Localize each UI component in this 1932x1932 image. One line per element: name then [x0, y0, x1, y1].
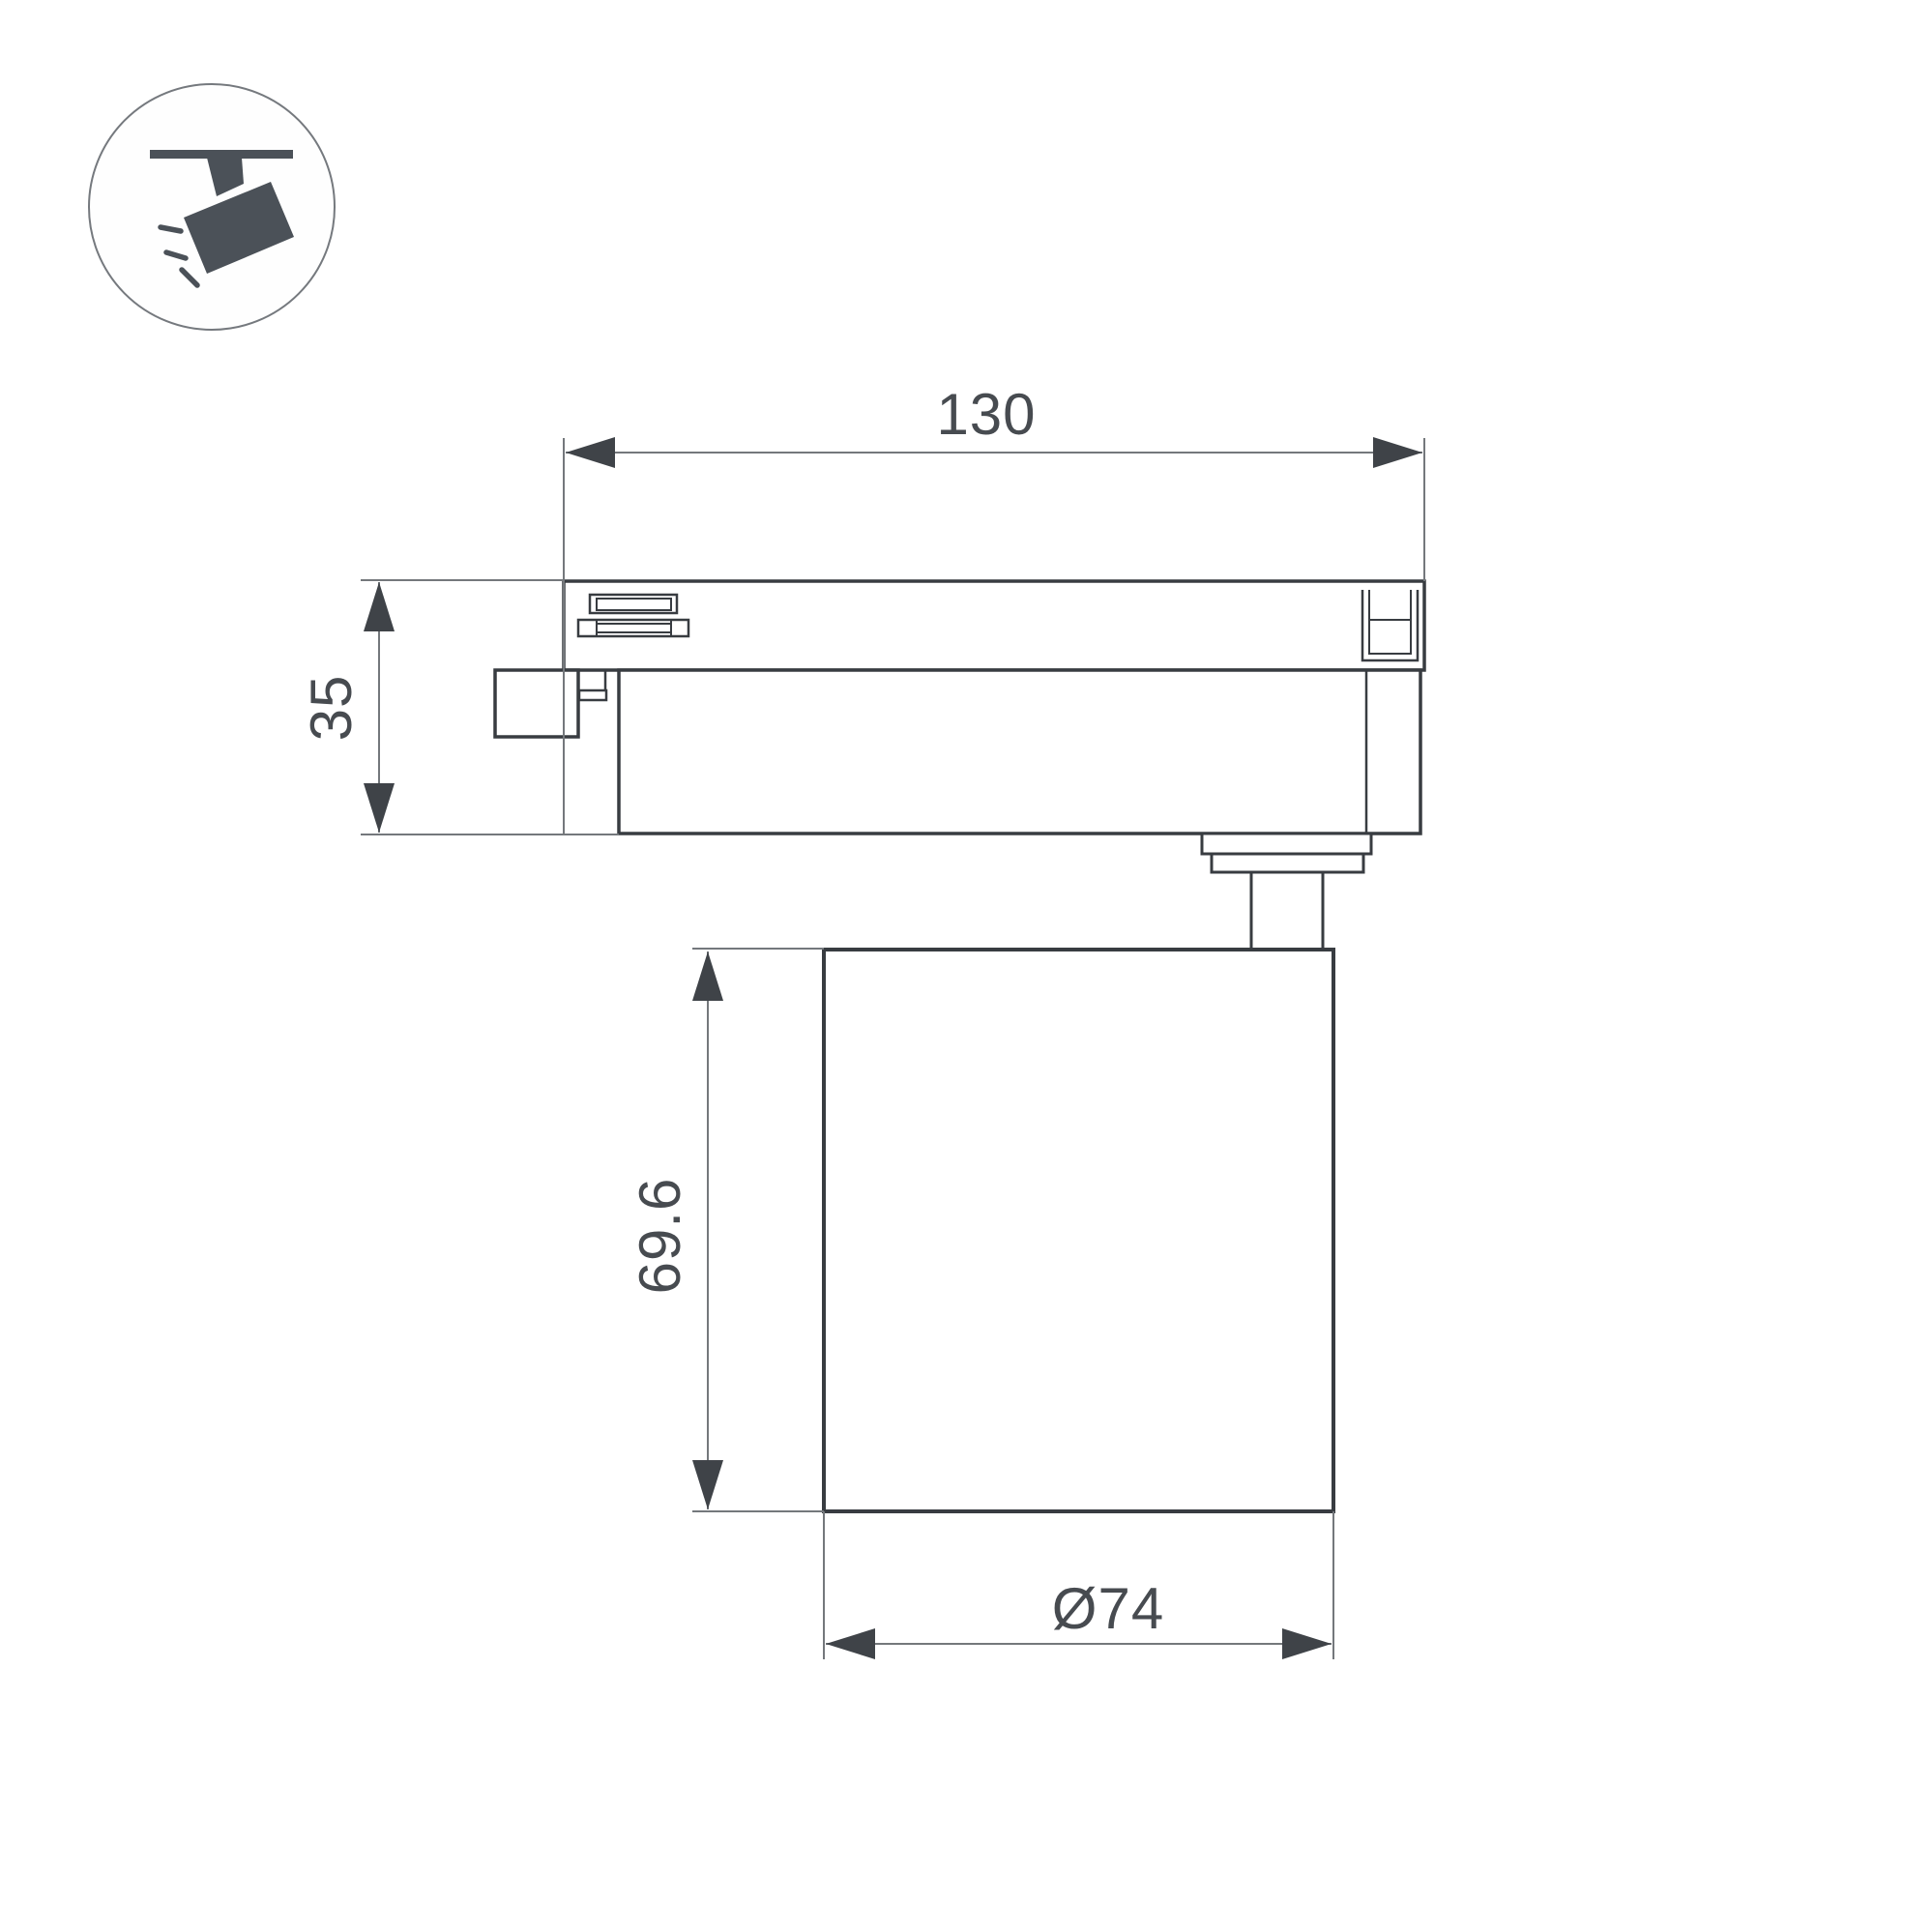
dimension-label-69-6: 69.6: [628, 1178, 692, 1295]
dimension-label-35: 35: [299, 675, 364, 742]
adapter-upper-body: [564, 581, 1424, 670]
lamp-body: [824, 950, 1333, 1511]
adapter-lower-housing: [619, 670, 1420, 834]
stem-plate-upper: [1202, 834, 1371, 854]
icon-track-bar: [150, 150, 293, 159]
stem-plate-lower: [1212, 854, 1363, 872]
adapter-latch-bar: [579, 690, 606, 700]
lamp-body-outline: [824, 950, 1333, 1511]
adapter-lock-lever: [495, 670, 578, 737]
track-adapter: [495, 581, 1424, 834]
dimension-label-130: 130: [936, 382, 1036, 447]
track-spotlight-icon: [89, 84, 335, 330]
dimension-label-74: Ø74: [1052, 1576, 1164, 1641]
drawing-canvas: 130 35 69.6 Ø74: [0, 0, 1932, 1932]
